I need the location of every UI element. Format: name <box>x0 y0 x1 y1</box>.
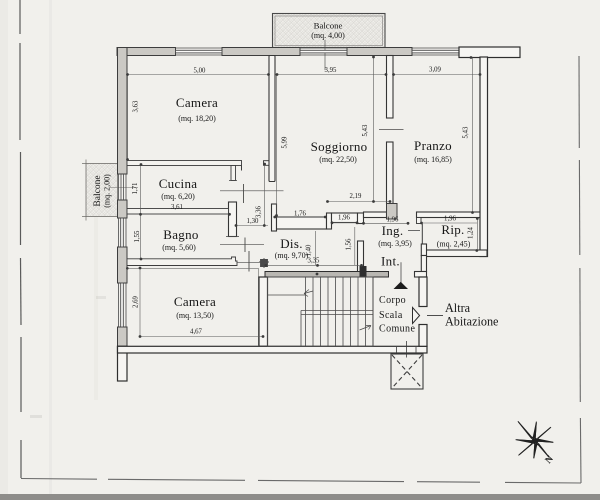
svg-text:(mq. 2,00): (mq. 2,00) <box>103 174 112 208</box>
svg-text:Camera: Camera <box>176 95 218 110</box>
svg-text:1,55: 1,55 <box>134 230 141 242</box>
svg-text:Balcone: Balcone <box>314 21 343 31</box>
svg-text:(mq. 16,85): (mq. 16,85) <box>414 155 452 164</box>
svg-text:(mq. 2,45): (mq. 2,45) <box>437 240 471 249</box>
svg-text:5,43: 5,43 <box>362 124 369 136</box>
svg-text:2,69: 2,69 <box>133 295 140 307</box>
svg-text:3,63: 3,63 <box>133 100 140 112</box>
svg-text:Dis.: Dis. <box>280 236 303 251</box>
svg-text:(mq. 4,00): (mq. 4,00) <box>311 31 345 40</box>
svg-text:5,00: 5,00 <box>194 68 206 75</box>
svg-text:(mq. 13,50): (mq. 13,50) <box>176 311 214 320</box>
svg-text:1,96: 1,96 <box>444 216 456 223</box>
svg-text:Corpo: Corpo <box>379 295 406 306</box>
svg-text:(mq. 3,95): (mq. 3,95) <box>378 239 412 248</box>
svg-text:Rip.: Rip. <box>441 222 464 237</box>
svg-text:Comune: Comune <box>379 324 415 335</box>
svg-text:4,67: 4,67 <box>190 329 202 336</box>
svg-text:2,19: 2,19 <box>350 193 362 200</box>
svg-text:Camera: Camera <box>174 294 216 309</box>
svg-text:1,56: 1,56 <box>346 238 353 250</box>
svg-text:Soggiorno: Soggiorno <box>311 139 368 154</box>
svg-text:(mq. 6,20): (mq. 6,20) <box>161 192 195 201</box>
svg-text:1,76: 1,76 <box>294 211 306 218</box>
svg-text:3,09: 3,09 <box>429 67 441 74</box>
svg-text:Balcone: Balcone <box>93 175 103 206</box>
svg-text:3,35: 3,35 <box>308 258 320 265</box>
svg-text:1,30: 1,30 <box>247 218 259 225</box>
svg-text:Ing.: Ing. <box>382 223 404 238</box>
svg-text:3,61: 3,61 <box>171 204 183 211</box>
svg-text:3,95: 3,95 <box>325 67 337 74</box>
svg-text:1,71: 1,71 <box>132 183 139 195</box>
svg-text:5,43: 5,43 <box>463 126 470 138</box>
svg-text:(mq. 5,60): (mq. 5,60) <box>162 243 196 252</box>
svg-text:1,40: 1,40 <box>306 244 313 256</box>
svg-text:1,96: 1,96 <box>387 217 399 224</box>
svg-text:5,99: 5,99 <box>282 136 289 148</box>
svg-text:Cucina: Cucina <box>159 176 198 191</box>
svg-text:3,36: 3,36 <box>256 205 263 217</box>
svg-text:Abitazione: Abitazione <box>445 315 498 329</box>
svg-text:Scala: Scala <box>379 310 403 321</box>
svg-text:Bagno: Bagno <box>163 227 198 242</box>
svg-text:Int.: Int. <box>381 254 400 269</box>
svg-text:1,96: 1,96 <box>338 215 350 222</box>
svg-text:(mq. 18,20): (mq. 18,20) <box>178 114 216 123</box>
svg-text:1,24: 1,24 <box>467 226 474 238</box>
svg-text:Altra: Altra <box>445 301 471 315</box>
svg-text:Pranzo: Pranzo <box>414 138 452 153</box>
svg-text:(mq. 22,50): (mq. 22,50) <box>319 155 357 164</box>
svg-text:(mq. 9,70): (mq. 9,70) <box>275 251 309 260</box>
